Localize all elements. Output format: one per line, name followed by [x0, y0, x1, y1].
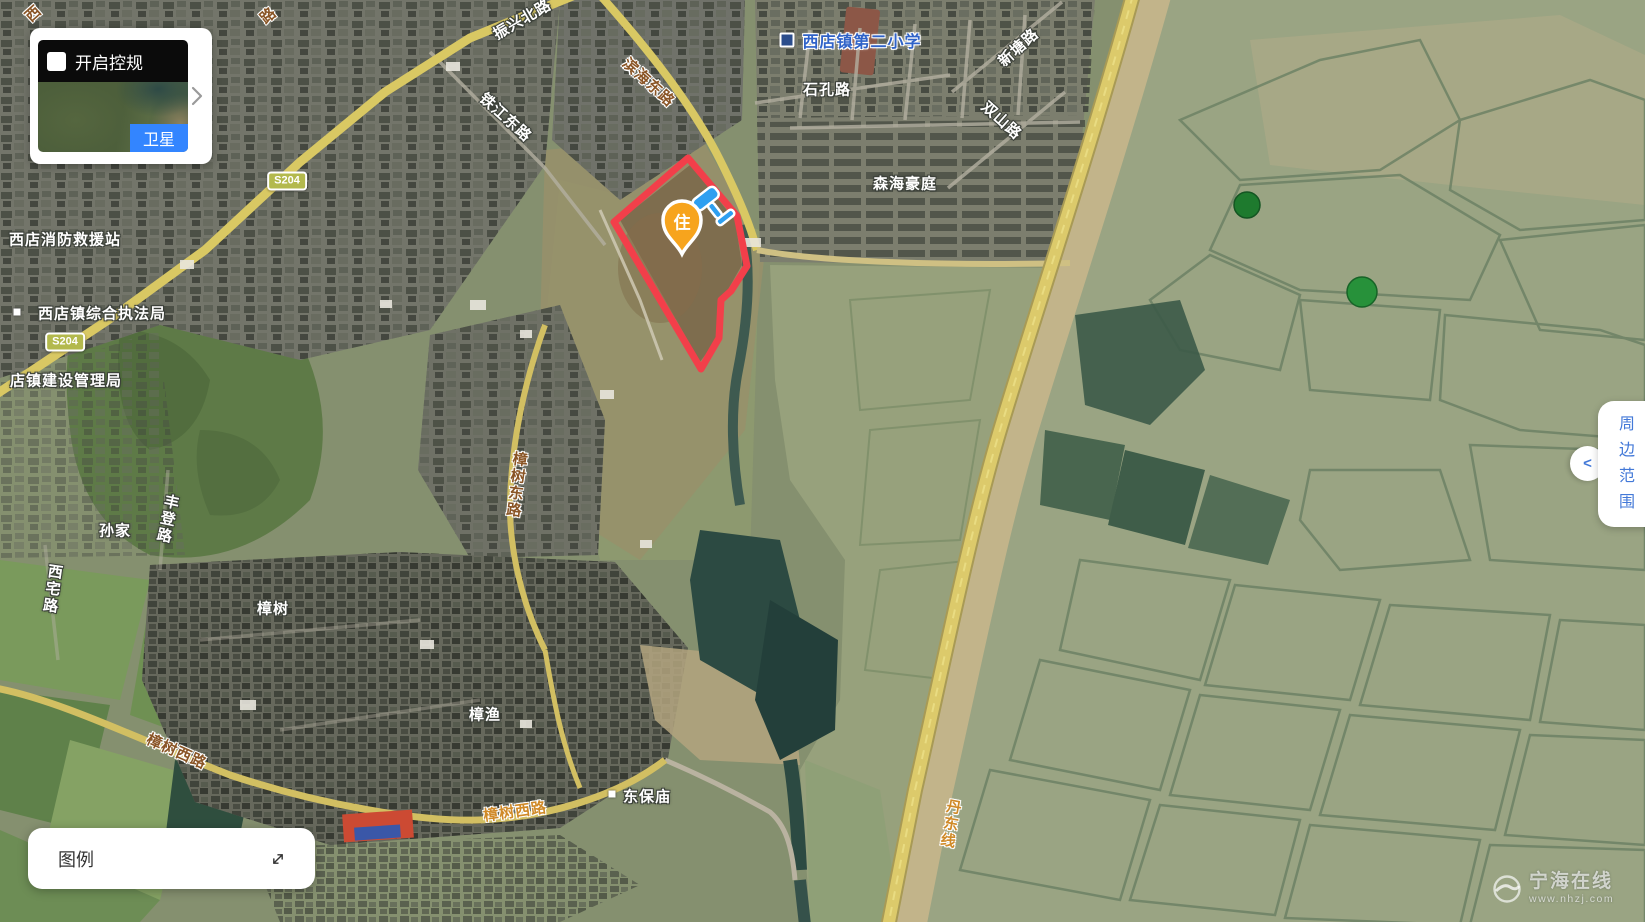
surrounding-area-tab-label: 周边范围: [1616, 409, 1632, 519]
satellite-layer-badge[interactable]: 卫星: [130, 124, 188, 152]
road-badge-s204-north: S204: [267, 172, 307, 191]
school-building-icon: [780, 33, 795, 48]
road-badge-s204-south: S204: [45, 333, 85, 352]
expand-diagonal-icon: [268, 849, 288, 869]
basemap-thumbnail[interactable]: 开启控规 卫星: [38, 40, 188, 152]
satellite-basemap[interactable]: [0, 0, 1645, 922]
poi-dot-icon: [609, 791, 616, 798]
poi-dot-icon: [14, 309, 21, 316]
layer-control-card: 开启控规 卫星: [30, 28, 212, 164]
chevron-left-icon: <: [1583, 455, 1592, 472]
kongui-checkbox-label: 开启控规: [75, 49, 143, 74]
legend-expand-button[interactable]: [267, 848, 289, 870]
layer-expand-button[interactable]: [188, 84, 206, 108]
surrounding-area-tab[interactable]: 周边范围: [1598, 401, 1645, 527]
legend-title: 图例: [58, 846, 94, 872]
kongui-toggle-bar: 开启控规: [38, 40, 188, 82]
chevron-right-icon: [191, 86, 203, 106]
map-app-screen: 住 西 路 振兴北路 滨海东路 铁江东路 石孔路 新塘路 双山路 西店镇第二小学…: [0, 0, 1645, 922]
kongui-checkbox[interactable]: [47, 52, 66, 71]
legend-card[interactable]: 图例: [28, 828, 315, 889]
